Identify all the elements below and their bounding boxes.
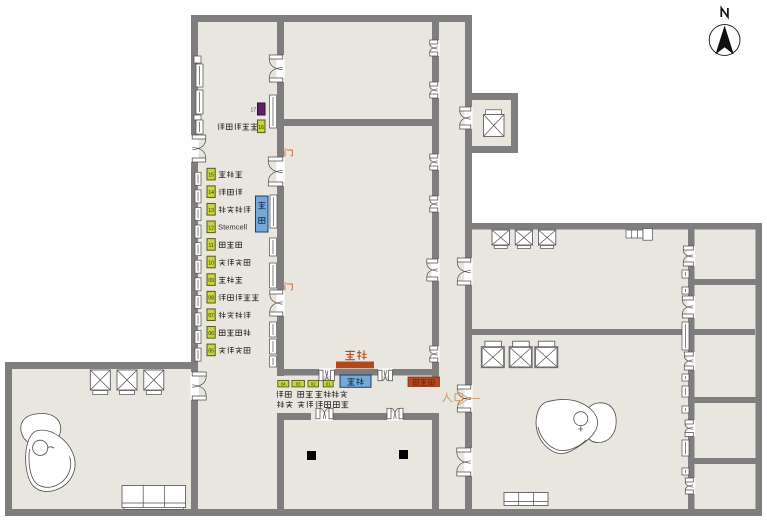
svg-text:15: 15 — [208, 173, 214, 179]
svg-text:11: 11 — [208, 243, 213, 249]
svg-text:14: 14 — [208, 190, 214, 196]
svg-text:12: 12 — [208, 225, 214, 231]
svg-text:10: 10 — [208, 261, 214, 267]
svg-text:03: 03 — [296, 382, 301, 387]
svg-text:13: 13 — [208, 208, 214, 214]
svg-text:07: 07 — [208, 313, 214, 319]
svg-text:02: 02 — [311, 382, 316, 387]
svg-text:06: 06 — [208, 331, 214, 337]
svg-text:01: 01 — [326, 382, 331, 387]
svg-text:17: 17 — [250, 108, 256, 114]
svg-text:16: 16 — [258, 125, 264, 131]
svg-text:05: 05 — [208, 348, 214, 354]
svg-text:09: 09 — [208, 278, 214, 284]
svg-text:Stemcell: Stemcell — [218, 223, 247, 232]
svg-text:04: 04 — [281, 382, 286, 387]
svg-text:08: 08 — [208, 296, 214, 302]
